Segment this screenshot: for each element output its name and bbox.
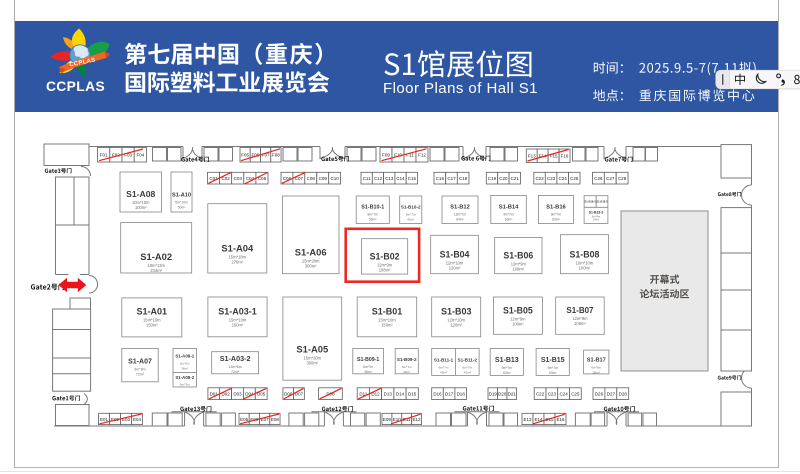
svg-text:108m²: 108m²: [379, 268, 391, 273]
svg-text:150m²: 150m²: [232, 323, 244, 328]
svg-text:100m²: 100m²: [135, 205, 147, 210]
svg-text:C12: C12: [374, 176, 383, 181]
svg-text:270m²: 270m²: [231, 260, 243, 265]
svg-text:C11: C11: [363, 176, 371, 181]
svg-text:E04: E04: [133, 417, 142, 422]
svg-text:E13: E13: [523, 417, 532, 422]
svg-text:63m²: 63m²: [505, 218, 513, 222]
svg-text:E08: E08: [271, 417, 280, 422]
svg-text:F04: F04: [136, 153, 144, 158]
svg-text:E16: E16: [556, 417, 565, 422]
svg-text:6m*7m: 6m*7m: [462, 365, 472, 369]
svg-text:S1-B05: S1-B05: [503, 306, 533, 316]
svg-text:6m*7m: 6m*7m: [439, 365, 449, 369]
svg-text:D14: D14: [396, 391, 405, 396]
svg-text:D21: D21: [508, 391, 517, 396]
svg-text:Floor Plans of Hall S1: Floor Plans of Hall S1: [383, 80, 538, 97]
svg-text:C10: C10: [331, 176, 340, 181]
svg-text:D28: D28: [619, 391, 628, 396]
svg-text:42m²: 42m²: [403, 370, 410, 374]
svg-text:36m²: 36m²: [181, 367, 188, 371]
svg-text:S1-A01: S1-A01: [137, 307, 168, 317]
svg-text:S1-B18-2: S1-B18-2: [596, 200, 608, 204]
svg-text:F01: F01: [100, 153, 108, 158]
svg-text:C25: C25: [571, 391, 580, 396]
svg-text:S1-B04: S1-B04: [440, 250, 470, 260]
svg-text:C22: C22: [535, 176, 544, 181]
svg-text:C06: C06: [283, 176, 292, 181]
svg-text:S1-B10-1: S1-B10-1: [361, 205, 384, 211]
svg-text:12m*7m: 12m*7m: [454, 212, 467, 216]
svg-text:6m*7m: 6m*7m: [402, 365, 412, 369]
svg-text:S1-A10: S1-A10: [172, 193, 191, 199]
svg-text:D18: D18: [457, 391, 466, 396]
svg-text:6m*3m: 6m*3m: [180, 383, 190, 387]
svg-text:E09: E09: [383, 417, 392, 422]
svg-text:C13: C13: [385, 176, 394, 181]
svg-text:S1-B10-2: S1-B10-2: [401, 205, 421, 210]
svg-text:6m*7m: 6m*7m: [406, 212, 416, 216]
svg-text:84m²: 84m²: [456, 218, 464, 222]
svg-text:S1-B09-1: S1-B09-1: [357, 357, 379, 363]
svg-text:S1-B02: S1-B02: [370, 252, 400, 262]
svg-text:42m²: 42m²: [407, 218, 414, 222]
svg-text:9m*7m: 9m*7m: [503, 212, 514, 216]
svg-text:120m²: 120m²: [449, 266, 461, 271]
svg-text:F05: F05: [241, 153, 249, 158]
svg-text:F08: F08: [272, 153, 280, 158]
svg-text:150m²: 150m²: [146, 323, 158, 328]
svg-text:S1-A09-1: S1-A09-1: [175, 354, 194, 359]
svg-text:S1-B16: S1-B16: [546, 205, 566, 211]
svg-text:C23: C23: [547, 176, 556, 181]
svg-text:S1-B06: S1-B06: [503, 251, 533, 261]
svg-text:56m²: 56m²: [369, 218, 377, 222]
svg-text:C03: C03: [234, 176, 243, 181]
svg-text:S1-B15: S1-B15: [541, 357, 565, 364]
svg-text:150m²: 150m²: [381, 323, 393, 328]
svg-text:D26: D26: [595, 391, 604, 396]
svg-text:234m²: 234m²: [150, 268, 162, 273]
svg-text:8m*7m: 8m*7m: [363, 365, 373, 369]
svg-text:C27: C27: [606, 176, 615, 181]
svg-text:E05: E05: [240, 417, 249, 422]
svg-text:S1-A07: S1-A07: [128, 359, 152, 366]
svg-text:S1-B09-2: S1-B09-2: [397, 357, 417, 362]
svg-text:8m*7m: 8m*7m: [368, 212, 379, 216]
svg-text:108m²: 108m²: [574, 321, 586, 326]
svg-text:72m²: 72m²: [231, 370, 240, 374]
svg-text:108m²: 108m²: [512, 322, 524, 327]
svg-text:S1-B01: S1-B01: [372, 307, 403, 317]
svg-text:S1-A06: S1-A06: [295, 247, 327, 258]
svg-text:E01: E01: [100, 417, 109, 422]
svg-text:C22: C22: [536, 391, 545, 396]
svg-text:S1-B18-1: S1-B18-1: [585, 200, 597, 204]
svg-text:108m²: 108m²: [513, 267, 525, 272]
svg-text:S1-B14: S1-B14: [499, 205, 519, 211]
svg-text:50m²: 50m²: [178, 206, 187, 210]
svg-text:D17: D17: [445, 391, 454, 396]
svg-text:C26: C26: [594, 176, 603, 181]
svg-text:D19: D19: [489, 391, 498, 396]
svg-text:56m²: 56m²: [365, 370, 372, 374]
svg-text:300m²: 300m²: [306, 361, 318, 366]
svg-text:9m*7m: 9m*7m: [502, 366, 513, 370]
svg-text:CCPLAS: CCPLAS: [46, 79, 105, 94]
svg-text:C24: C24: [559, 176, 568, 181]
svg-text:C25: C25: [570, 176, 579, 181]
svg-text:42m²: 42m²: [464, 371, 471, 375]
svg-text:C19: C19: [488, 176, 497, 181]
svg-text:5m*10m: 5m*10m: [175, 200, 188, 204]
svg-text:C24: C24: [559, 391, 568, 396]
svg-text:12m*6m: 12m*6m: [228, 365, 241, 369]
svg-text:D15: D15: [408, 391, 417, 396]
svg-text:C09: C09: [319, 176, 328, 181]
svg-text:D06: D06: [284, 391, 293, 396]
svg-text:S1-B11-2: S1-B11-2: [458, 358, 478, 363]
svg-text:D27: D27: [607, 391, 616, 396]
svg-text:9m*7m: 9m*7m: [547, 366, 558, 370]
svg-text:S1-B18-3: S1-B18-3: [589, 211, 604, 215]
svg-text:S1-B08: S1-B08: [570, 250, 600, 260]
svg-text:F16: F16: [561, 154, 569, 159]
svg-text:F09: F09: [382, 153, 390, 158]
svg-text:C20: C20: [499, 176, 508, 181]
svg-text:100m²: 100m²: [579, 266, 591, 271]
svg-text:D03: D03: [233, 391, 242, 396]
svg-text:S1-A08: S1-A08: [126, 189, 155, 199]
svg-text:C21: C21: [511, 176, 520, 181]
svg-text:24m²: 24m²: [593, 218, 599, 222]
svg-text:S1-B11-1: S1-B11-1: [434, 358, 454, 363]
svg-text:63m²: 63m²: [552, 218, 560, 222]
svg-text:300m²: 300m²: [305, 264, 317, 269]
svg-text:C18: C18: [459, 176, 468, 181]
svg-text:63m²: 63m²: [503, 371, 511, 375]
svg-text:C28: C28: [618, 176, 627, 181]
svg-text:6m*6m: 6m*6m: [180, 361, 190, 365]
svg-text:C17: C17: [447, 176, 456, 181]
svg-text:D13: D13: [384, 391, 393, 396]
svg-text:120m²: 120m²: [450, 323, 462, 328]
svg-text:S1-A03-1: S1-A03-1: [218, 307, 257, 317]
svg-text:C14: C14: [396, 176, 405, 181]
svg-text:C16: C16: [436, 176, 445, 181]
svg-text:6m*6m: 6m*6m: [591, 365, 601, 369]
svg-text:9m*7m: 9m*7m: [551, 212, 562, 216]
svg-text:E12: E12: [413, 417, 422, 422]
svg-text:S1-A04: S1-A04: [221, 243, 254, 254]
svg-text:42m²: 42m²: [440, 371, 447, 375]
svg-text:S1-B03: S1-B03: [441, 307, 472, 317]
svg-text:D16: D16: [433, 391, 442, 396]
svg-text:S1-B07: S1-B07: [566, 306, 594, 315]
svg-text:S1-A03-2: S1-A03-2: [220, 354, 251, 363]
svg-text:C08: C08: [307, 176, 316, 181]
svg-text:S1-A02: S1-A02: [140, 251, 172, 262]
svg-text:S1-B17: S1-B17: [587, 358, 606, 364]
svg-text:S1-B12: S1-B12: [450, 205, 470, 211]
svg-text:C15: C15: [408, 176, 417, 181]
svg-text:F13: F13: [528, 154, 536, 159]
svg-text:63m²: 63m²: [549, 371, 557, 375]
svg-text:S1-A05: S1-A05: [296, 344, 328, 355]
svg-text:S1-A09-2: S1-A09-2: [175, 375, 194, 380]
svg-text:D20: D20: [498, 391, 507, 396]
svg-text:9m*8m: 9m*8m: [134, 367, 145, 371]
svg-text:C23: C23: [548, 391, 557, 396]
svg-text:F12: F12: [418, 153, 426, 158]
svg-text:36m²: 36m²: [593, 371, 600, 375]
svg-text:S1-B13: S1-B13: [495, 357, 519, 364]
svg-text:72m²: 72m²: [136, 373, 145, 377]
